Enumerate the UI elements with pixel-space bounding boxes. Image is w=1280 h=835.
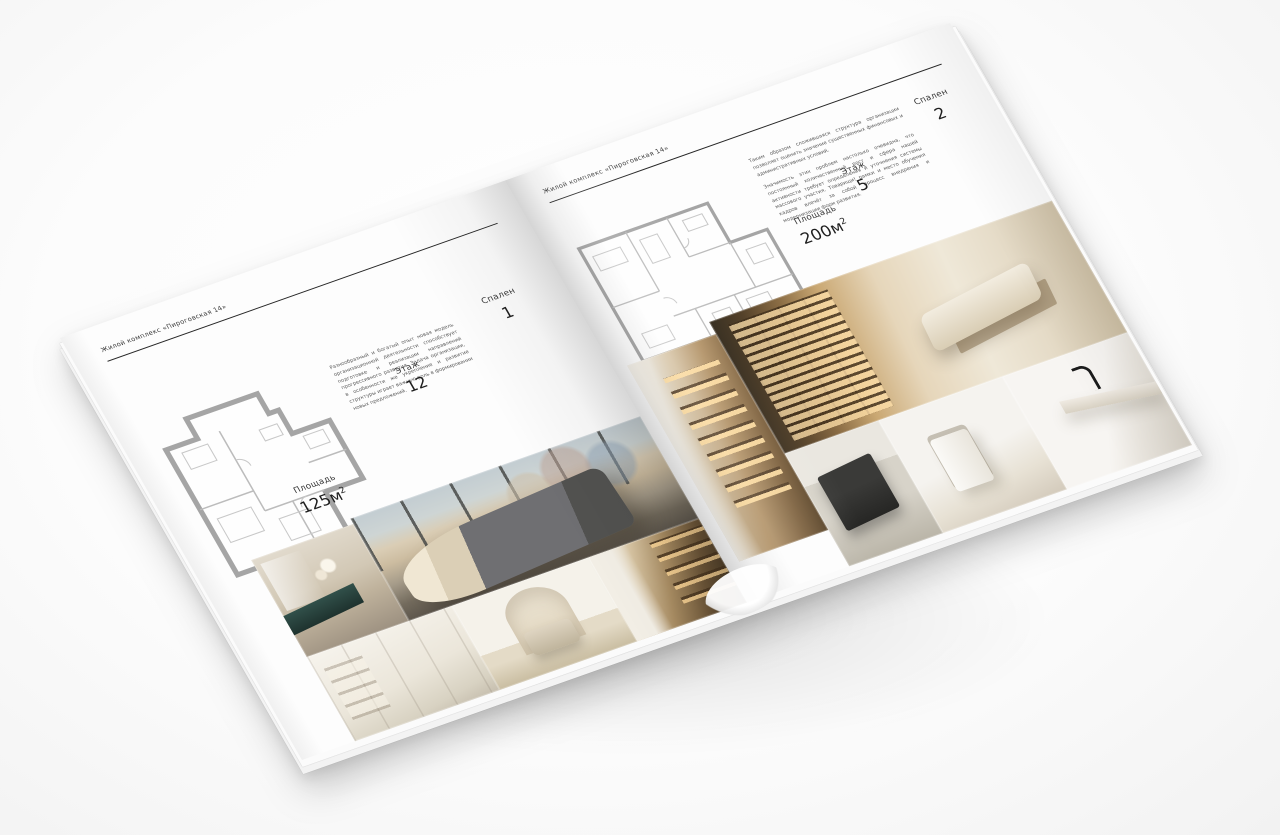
bedrooms-spec: Спален 1 <box>470 283 539 330</box>
page-header: Жилой комплекс «Пироговская 14» <box>99 303 228 354</box>
page-header: Жилой комплекс «Пироговская 14» <box>541 144 670 195</box>
bedrooms-spec: Спален 2 <box>902 84 971 131</box>
brochure-spread: Жилой комплекс «Пироговская 14» Разно <box>60 23 1192 760</box>
brochure-scene: Жилой комплекс «Пироговская 14» Разно <box>0 0 1280 835</box>
